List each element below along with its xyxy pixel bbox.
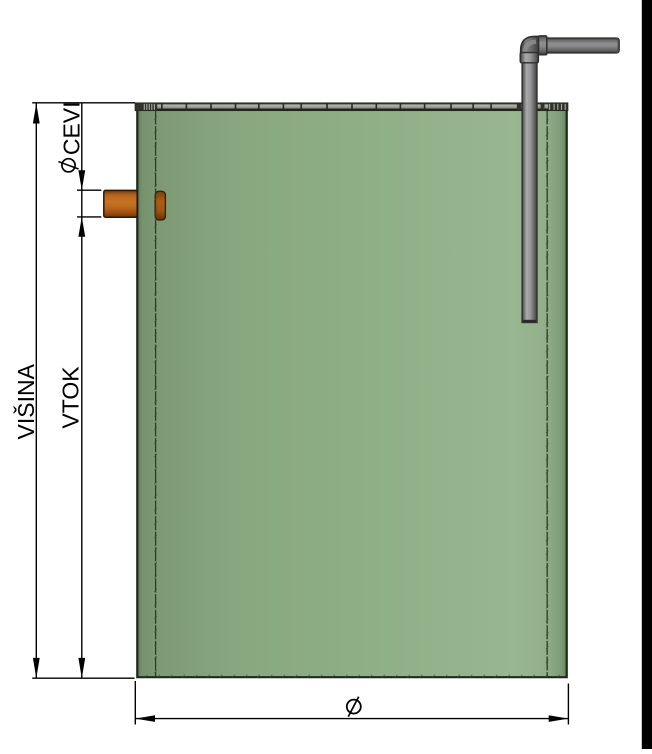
svg-text:VIŠINA: VIŠINA	[12, 363, 39, 439]
svg-text:VTOK: VTOK	[58, 366, 84, 429]
svg-text:CEVI: CEVI	[59, 101, 85, 155]
